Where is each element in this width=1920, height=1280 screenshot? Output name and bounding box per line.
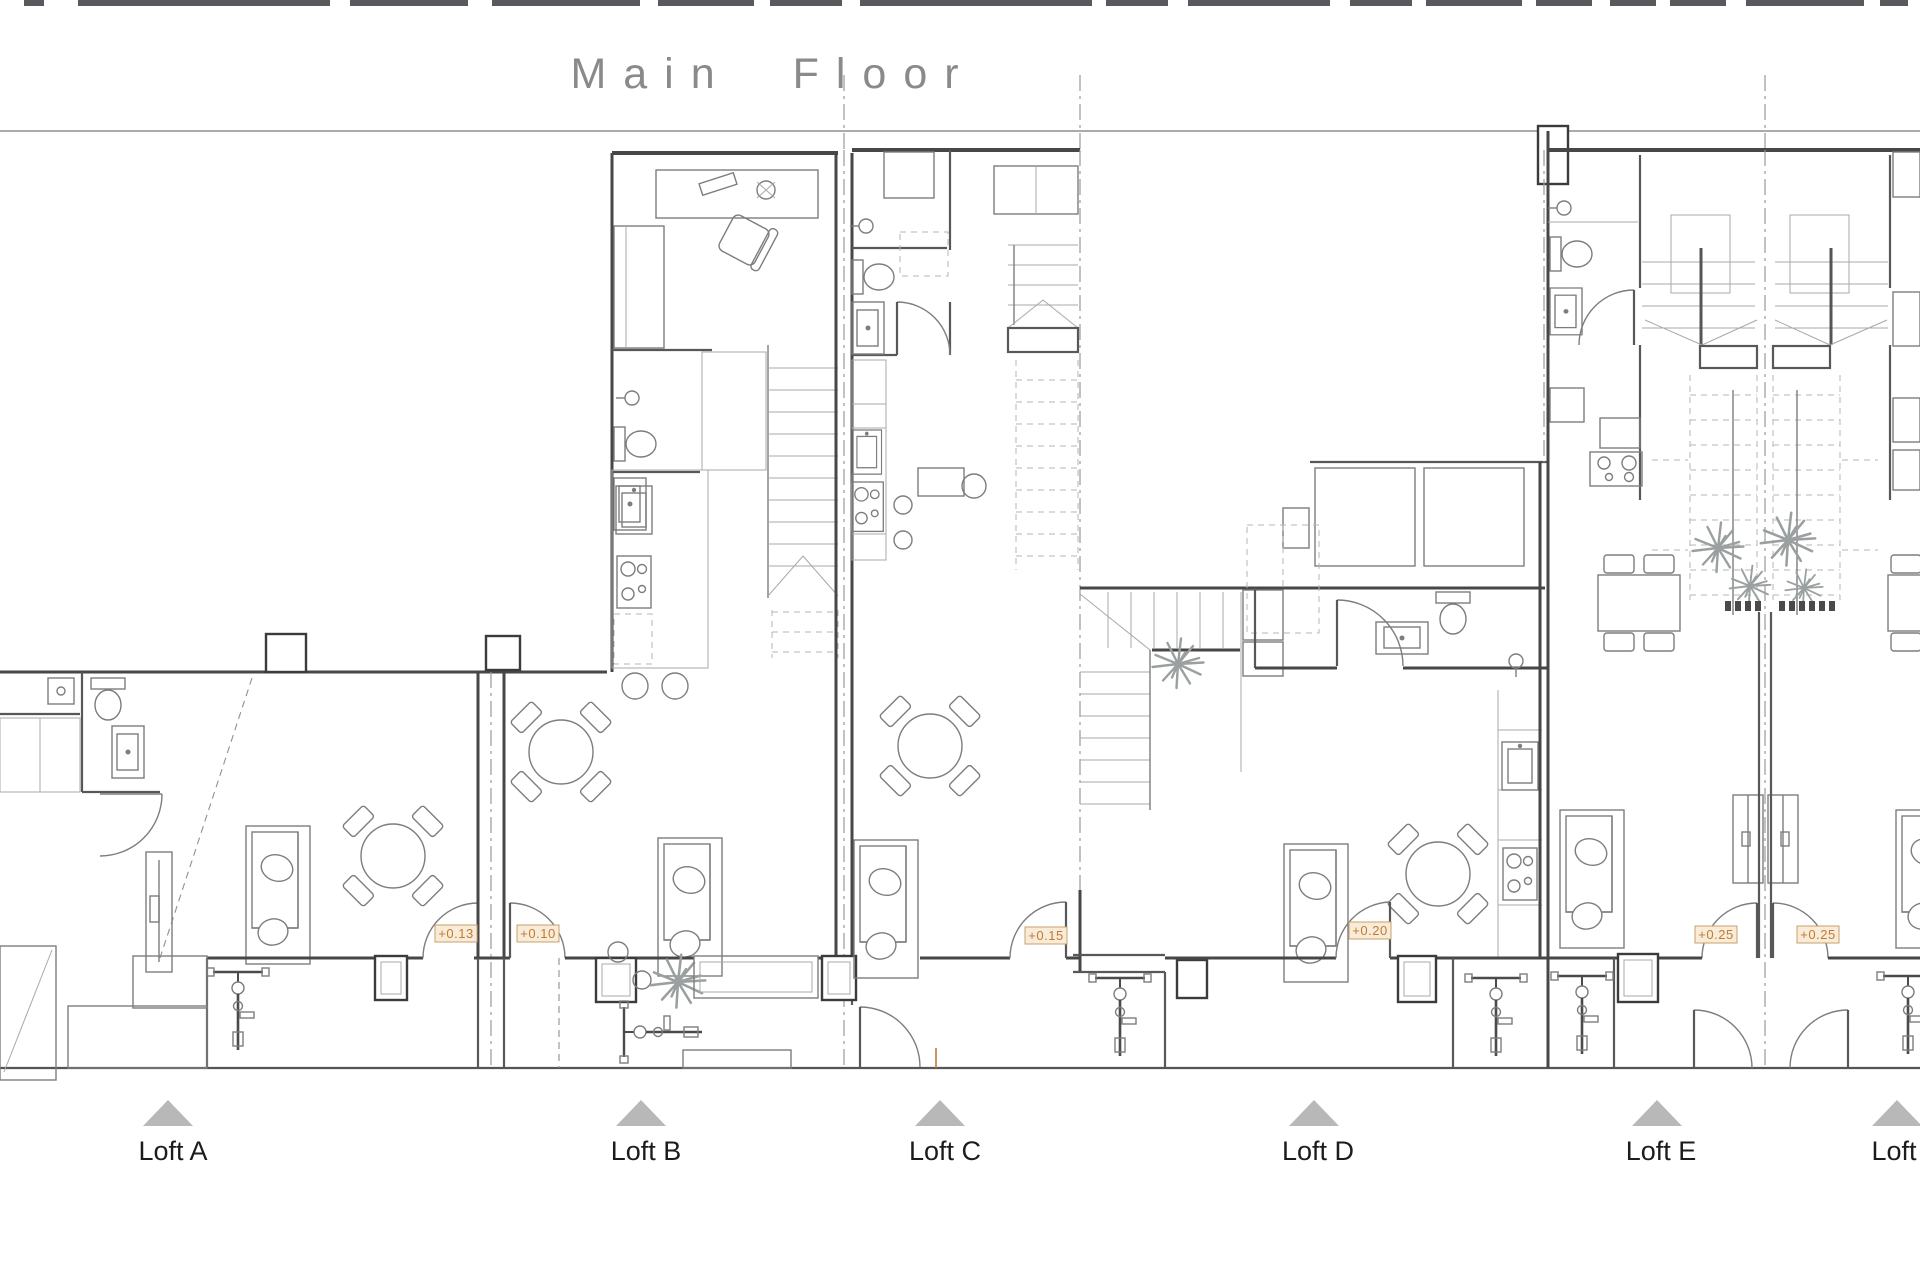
page-title: Main Floor xyxy=(570,50,975,98)
basin-icon xyxy=(1509,654,1523,677)
loft-f-label: Loft F xyxy=(1871,1136,1920,1166)
svg-text:+0.20: +0.20 xyxy=(1352,923,1387,938)
stove-icon xyxy=(851,482,883,531)
loft-a-label: Loft A xyxy=(138,1136,207,1166)
plant-icon xyxy=(1153,639,1204,689)
sofa-icon xyxy=(658,838,722,976)
bicycle-icon xyxy=(207,968,269,1050)
plant-icon xyxy=(1761,513,1815,566)
entry-marker-a xyxy=(143,1100,193,1126)
loft-c-label: Loft C xyxy=(909,1136,981,1166)
stool-icon xyxy=(622,673,648,699)
party-wall-column xyxy=(1538,126,1568,184)
toilet-icon xyxy=(1436,592,1470,634)
kitchen-sink-icon xyxy=(616,486,652,534)
closet-icon xyxy=(884,152,934,198)
sink-vanity-icon xyxy=(1376,622,1428,654)
elevation-tag-a: +0.13 xyxy=(435,925,477,942)
elevation-tag-e: +0.25 xyxy=(1695,926,1737,943)
entry-marker-e xyxy=(1632,1100,1682,1126)
floor-plan-page: Main Floor xyxy=(0,0,1920,1280)
shared-entry-corridor xyxy=(596,942,936,1068)
sink-vanity-icon xyxy=(1550,288,1582,335)
nightstand-icon xyxy=(1283,508,1309,548)
entry-marker-d xyxy=(1289,1100,1339,1126)
sofa-icon xyxy=(1896,810,1920,948)
sink-vanity-icon xyxy=(852,302,884,354)
stove-icon xyxy=(617,556,651,608)
elevation-tag-f: +0.25 xyxy=(1797,926,1839,943)
basin-icon xyxy=(616,391,639,405)
toilet-icon xyxy=(1550,237,1592,271)
svg-text:+0.25: +0.25 xyxy=(1698,927,1733,942)
party-wall-d-e xyxy=(1540,131,1548,1068)
entry-markers xyxy=(143,1100,1920,1126)
central-stairwell xyxy=(1642,150,1888,1068)
loft-labels: Loft A Loft B Loft C Loft D Loft E Loft … xyxy=(138,1136,1920,1166)
bicycle-icon xyxy=(1089,974,1151,1056)
stairs-icon xyxy=(1008,245,1078,570)
party-wall-a-b xyxy=(474,672,510,1068)
loft-b-label: Loft B xyxy=(611,1136,682,1166)
svg-text:+0.10: +0.10 xyxy=(520,926,555,941)
dining-table-icon xyxy=(1387,823,1489,925)
dining-table-icon xyxy=(879,695,981,797)
bicycle-icon xyxy=(1877,972,1920,1054)
sofa-icon xyxy=(246,826,310,964)
loft-f-plan xyxy=(1877,152,1920,1054)
party-wall-b-c xyxy=(836,150,852,1068)
stool-icon xyxy=(662,673,688,699)
tv-unit-icon xyxy=(146,852,172,972)
deck-boards xyxy=(1725,601,1835,611)
elevation-tag-b: +0.10 xyxy=(517,925,559,942)
kitchen-sink-icon xyxy=(852,430,882,474)
elevation-tags: +0.13 +0.10 +0.15 +0.20 +0.25 +0.25 xyxy=(435,922,1839,944)
bed-icon xyxy=(1424,468,1524,566)
elevation-tag-c: +0.15 xyxy=(1025,927,1067,944)
toilet-icon xyxy=(91,678,125,720)
sofa-icon xyxy=(1284,844,1348,982)
svg-text:+0.15: +0.15 xyxy=(1028,928,1063,943)
dining-set-icon xyxy=(1888,555,1920,651)
entry-marker-f xyxy=(1872,1100,1920,1126)
basin-icon xyxy=(1548,201,1571,215)
loft-d-label: Loft D xyxy=(1282,1136,1354,1166)
dining-table-icon xyxy=(342,805,444,907)
elevation-tag-d: +0.20 xyxy=(1349,922,1391,939)
sofa-icon xyxy=(854,840,918,978)
cropped-header-strip xyxy=(24,0,1908,6)
bed-icon xyxy=(1315,468,1415,566)
svg-text:+0.25: +0.25 xyxy=(1800,927,1835,942)
sofa-icon xyxy=(1560,810,1624,948)
toilet-icon xyxy=(614,427,656,461)
party-wall-c-d xyxy=(1073,150,1207,1068)
entry-marker-b xyxy=(616,1100,666,1126)
entry-marker-c xyxy=(915,1100,965,1126)
loft-e-label: Loft E xyxy=(1626,1136,1697,1166)
kitchen-sink-icon xyxy=(1502,742,1538,790)
stairs-icon xyxy=(1080,592,1241,810)
plant-icon xyxy=(651,955,705,1008)
bicycle-icon xyxy=(1551,972,1613,1054)
bicycle-icon xyxy=(620,1001,702,1063)
toilet-icon xyxy=(852,260,894,294)
site-lines xyxy=(0,75,1920,1068)
plant-icon xyxy=(1785,569,1822,605)
plant-icon xyxy=(1730,566,1771,606)
loft-c-plan xyxy=(850,150,1080,978)
stove-icon xyxy=(1503,848,1537,900)
floor-plan-drawing: Main Floor xyxy=(0,0,1920,1280)
svg-text:+0.13: +0.13 xyxy=(438,926,473,941)
stairs-icon xyxy=(768,345,838,658)
office-chair-icon xyxy=(716,209,779,272)
plant-icon xyxy=(1693,523,1744,573)
desk-icon xyxy=(656,170,818,218)
loft-a-plan xyxy=(0,634,607,1080)
bicycle-icon xyxy=(1465,974,1527,1056)
dining-set-icon xyxy=(1598,555,1680,651)
loft-d-plan xyxy=(1080,462,1548,1068)
dining-table-icon xyxy=(510,701,612,803)
stove-icon xyxy=(1590,452,1642,486)
sink-vanity-icon xyxy=(112,726,144,778)
closet-icon xyxy=(614,226,664,348)
